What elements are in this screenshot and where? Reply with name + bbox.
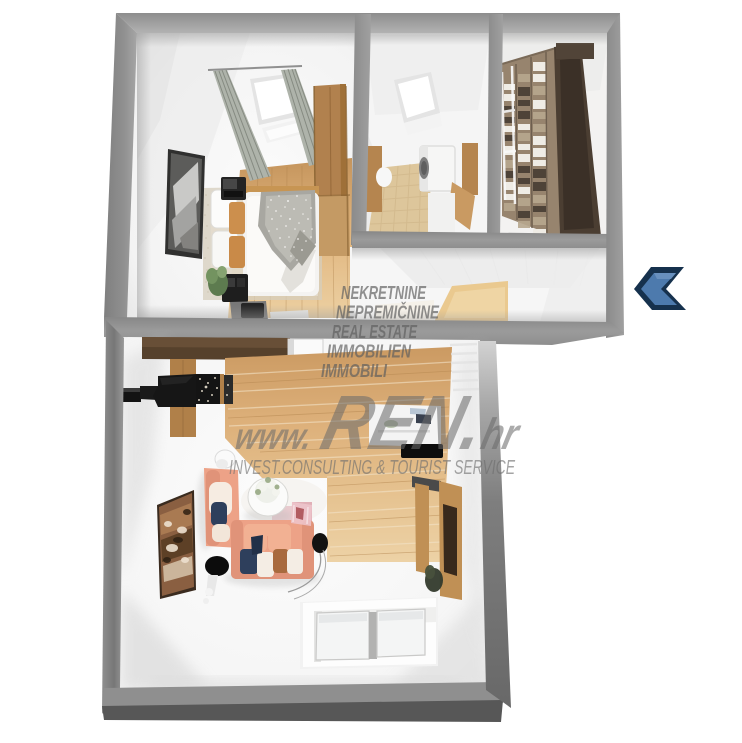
svg-text:INVEST.CONSULTING & TOURIST SE: INVEST.CONSULTING & TOURIST SERVICE xyxy=(229,457,515,479)
svg-text:IMMOBILIEN: IMMOBILIEN xyxy=(327,341,411,362)
svg-text:REAL ESTATE: REAL ESTATE xyxy=(332,321,417,342)
svg-text:NEKRETNINE: NEKRETNINE xyxy=(341,282,426,303)
svg-text:NEPREMIČNINE: NEPREMIČNINE xyxy=(336,302,439,323)
svg-text:IMMOBILI: IMMOBILI xyxy=(321,360,388,381)
svg-text:www.: www. xyxy=(231,416,317,457)
svg-text:REN.: REN. xyxy=(314,379,494,466)
